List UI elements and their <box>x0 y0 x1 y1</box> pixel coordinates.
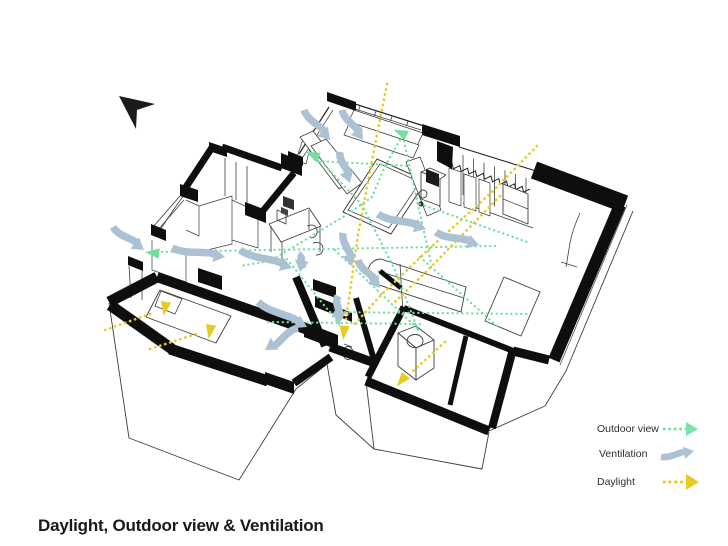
svg-text:Ventilation: Ventilation <box>599 448 648 460</box>
svg-text:Outdoor view: Outdoor view <box>597 423 659 435</box>
svg-text:Daylight: Daylight <box>597 476 635 488</box>
svg-text:Daylight, Outdoor view & Venti: Daylight, Outdoor view & Ventilation <box>38 516 324 535</box>
